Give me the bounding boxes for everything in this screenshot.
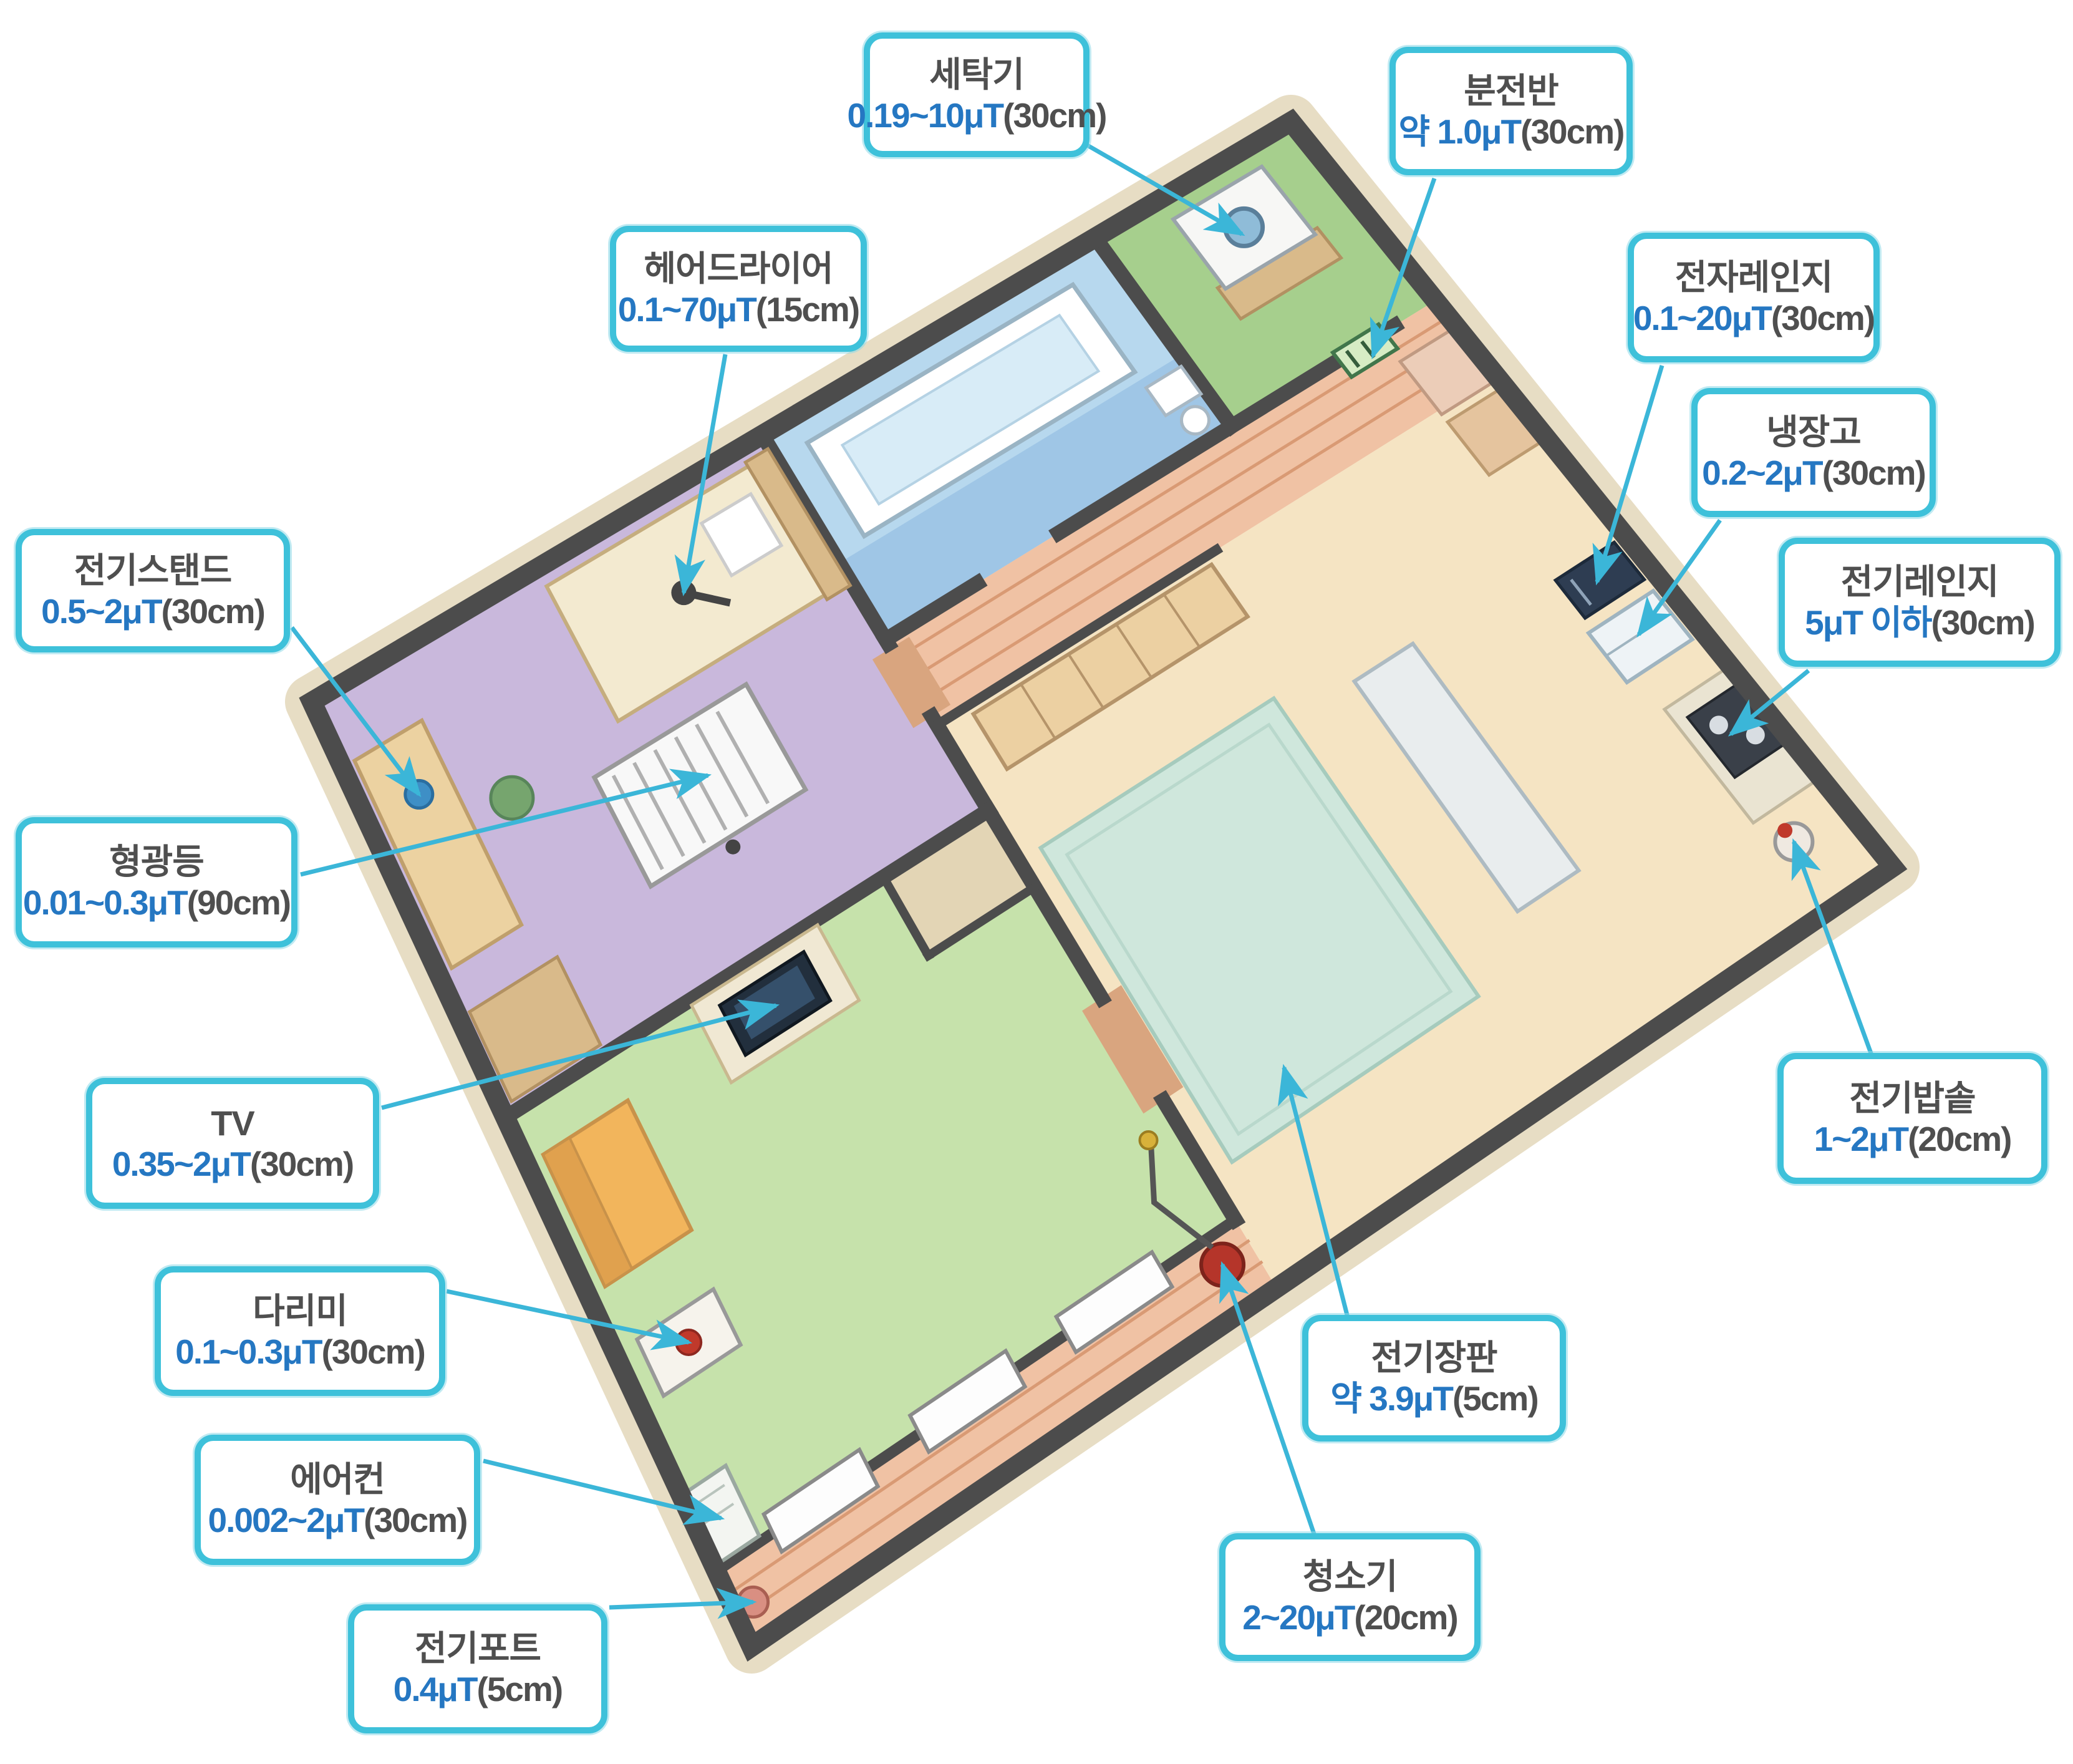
callout-title: 전기장판 (1371, 1339, 1497, 1377)
callout-value: 0.2~2μT(30cm) (1702, 454, 1925, 492)
callout-distance: (30cm) (250, 1145, 353, 1183)
callout-distance: (30cm) (162, 592, 264, 631)
callout-value: 1~2μT(20cm) (1814, 1120, 2011, 1158)
callout-title: 전기레인지 (1841, 563, 1999, 601)
callout-measurement: 0.1~70μT (618, 290, 756, 329)
callout-title: 분전반 (1464, 72, 1558, 110)
callout-value: 약 1.0μT(30cm) (1399, 113, 1624, 151)
callout-distance: (30cm) (364, 1501, 466, 1539)
callout-measurement: 5μT 이하 (1805, 603, 1931, 642)
callout-distance: (5cm) (1452, 1379, 1538, 1418)
callout-title: 냉장고 (1766, 413, 1861, 452)
callout-measurement: 0.35~2μT (112, 1145, 250, 1183)
callout-value: 0.5~2μT(30cm) (41, 593, 264, 631)
callout-title: 형광등 (109, 843, 204, 881)
callout-measurement: 2~20μT (1242, 1598, 1354, 1637)
callout-distance: (30cm) (1822, 453, 1925, 492)
callout-fluorescent-lamp: 형광등 0.01~0.3μT(90cm) (16, 817, 297, 947)
callout-title: 세탁기 (929, 56, 1024, 94)
callout-measurement: 0.1~0.3μT (175, 1332, 321, 1371)
callout-distance: (30cm) (1003, 96, 1106, 135)
callout-air-conditioner: 에어컨 0.002~2μT(30cm) (195, 1435, 480, 1565)
callout-microwave: 전자레인지 0.1~20μT(30cm) (1628, 233, 1880, 362)
callout-distance: (30cm) (1520, 112, 1623, 151)
callout-title: 청소기 (1303, 1558, 1398, 1596)
callout-measurement: 0.002~2μT (208, 1501, 364, 1539)
chair-illustration (491, 777, 533, 819)
callout-distance: (30cm) (1771, 299, 1874, 337)
callout-title: 다리미 (253, 1292, 347, 1330)
callout-distance: (30cm) (1931, 603, 2034, 642)
callout-distribution-panel: 분전반 약 1.0μT(30cm) (1389, 47, 1633, 175)
rice-cooker-illustration (1775, 823, 1812, 860)
callout-vacuum-cleaner: 청소기 2~20μT(20cm) (1219, 1533, 1481, 1661)
callout-measurement: 0.01~0.3μT (23, 883, 187, 922)
callout-distance: (30cm) (321, 1332, 424, 1371)
callout-value: 2~20μT(20cm) (1242, 1599, 1457, 1637)
callout-measurement: 1~2μT (1814, 1120, 1908, 1158)
emf-house-infographic: 세탁기 0.19~10μT(30cm) 분전반 약 1.0μT(30cm) 헤어… (0, 0, 2073, 1764)
callout-value: 0.002~2μT(30cm) (208, 1501, 467, 1539)
callout-refrigerator: 냉장고 0.2~2μT(30cm) (1691, 388, 1936, 517)
callout-tv: TV 0.35~2μT(30cm) (86, 1078, 379, 1209)
callout-measurement: 약 3.9μT (1330, 1379, 1452, 1418)
callout-electric-kettle: 전기포트 0.4μT(5cm) (348, 1604, 607, 1733)
callout-value: 0.19~10μT(30cm) (848, 97, 1106, 135)
callout-value: 0.01~0.3μT(90cm) (23, 884, 290, 922)
callout-distance: (15cm) (756, 290, 859, 329)
callout-distance: (90cm) (187, 883, 290, 922)
callout-distance: (5cm) (477, 1670, 563, 1708)
callout-distance: (20cm) (1908, 1120, 2011, 1158)
callout-title: 헤어드라이어 (644, 250, 833, 288)
callout-washer: 세탁기 0.19~10μT(30cm) (864, 32, 1090, 157)
callout-title: TV (211, 1104, 254, 1143)
callout-distance: (20cm) (1354, 1598, 1457, 1637)
callout-value: 0.35~2μT(30cm) (112, 1145, 353, 1183)
callout-title: 전기스탠드 (74, 551, 232, 590)
callout-hair-dryer: 헤어드라이어 0.1~70μT(15cm) (610, 226, 867, 352)
callout-measurement: 0.2~2μT (1702, 453, 1822, 492)
callout-value: 0.1~70μT(15cm) (618, 291, 859, 329)
callout-title: 전기밥솥 (1849, 1079, 1975, 1118)
callout-measurement: 0.1~20μT (1633, 299, 1771, 337)
callout-electric-range: 전기레인지 5μT 이하(30cm) (1779, 538, 2061, 667)
callout-title: 전기포트 (415, 1629, 541, 1668)
callout-value: 0.1~0.3μT(30cm) (175, 1333, 425, 1371)
callout-value: 0.4μT(5cm) (394, 1670, 562, 1708)
callout-measurement: 0.5~2μT (41, 592, 161, 631)
callout-value: 0.1~20μT(30cm) (1633, 299, 1874, 337)
callout-value: 5μT 이하(30cm) (1805, 604, 2034, 642)
callout-title: 에어컨 (290, 1460, 385, 1499)
callout-measurement: 0.19~10μT (848, 96, 1003, 135)
callout-value: 약 3.9μT(5cm) (1330, 1380, 1537, 1418)
callout-title: 전자레인지 (1675, 258, 1833, 297)
callout-measurement: 약 1.0μT (1399, 112, 1521, 151)
callout-electric-mat: 전기장판 약 3.9μT(5cm) (1302, 1315, 1566, 1442)
callout-rice-cooker: 전기밥솥 1~2μT(20cm) (1777, 1053, 2047, 1184)
callout-iron: 다리미 0.1~0.3μT(30cm) (155, 1266, 445, 1396)
callout-desk-lamp: 전기스탠드 0.5~2μT(30cm) (16, 529, 290, 652)
callout-measurement: 0.4μT (394, 1670, 477, 1708)
